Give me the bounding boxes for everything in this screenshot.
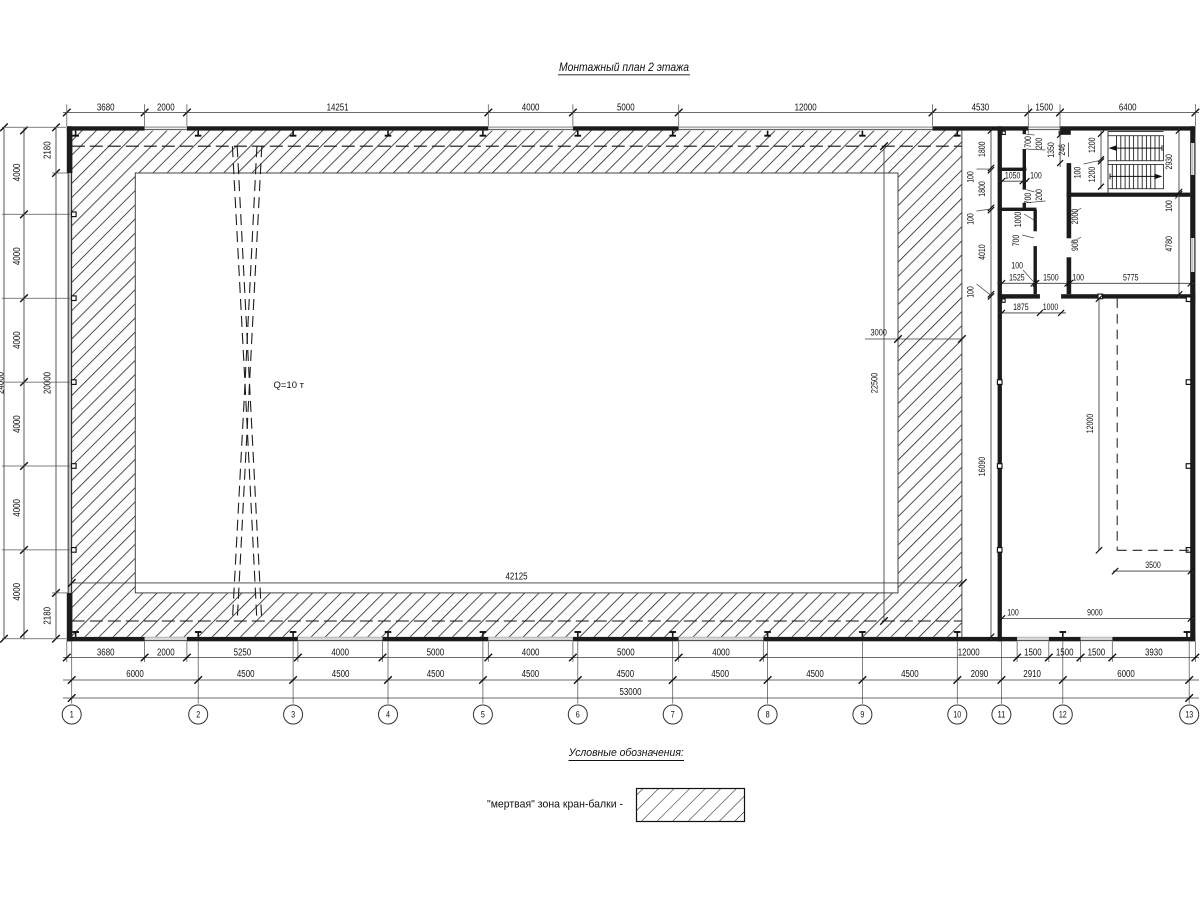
svg-text:13: 13 bbox=[1185, 710, 1193, 720]
svg-text:5000: 5000 bbox=[427, 648, 445, 659]
svg-text:6400: 6400 bbox=[1119, 103, 1137, 114]
svg-text:2000: 2000 bbox=[157, 648, 175, 659]
svg-text:3680: 3680 bbox=[97, 648, 115, 659]
svg-text:4000: 4000 bbox=[12, 415, 23, 433]
svg-text:4500: 4500 bbox=[901, 669, 919, 680]
svg-text:4500: 4500 bbox=[237, 669, 255, 680]
svg-text:1: 1 bbox=[70, 710, 74, 720]
svg-text:1800: 1800 bbox=[977, 141, 987, 157]
svg-text:4780: 4780 bbox=[1164, 236, 1174, 252]
svg-text:9: 9 bbox=[860, 710, 864, 720]
svg-text:1000: 1000 bbox=[1013, 212, 1023, 228]
svg-text:8: 8 bbox=[766, 710, 770, 720]
svg-text:16090: 16090 bbox=[977, 457, 987, 476]
svg-text:3500: 3500 bbox=[1145, 560, 1161, 570]
svg-text:12000: 12000 bbox=[958, 648, 980, 659]
svg-text:42125: 42125 bbox=[506, 571, 528, 582]
svg-text:4000: 4000 bbox=[12, 583, 23, 601]
svg-text:100: 100 bbox=[966, 286, 976, 298]
svg-text:6000: 6000 bbox=[126, 669, 144, 680]
svg-text:3930: 3930 bbox=[1145, 648, 1163, 659]
svg-text:1500: 1500 bbox=[1088, 648, 1106, 659]
svg-text:100: 100 bbox=[1007, 608, 1019, 618]
svg-text:1500: 1500 bbox=[1056, 648, 1074, 659]
svg-text:100: 100 bbox=[1164, 200, 1174, 212]
svg-text:10: 10 bbox=[953, 710, 961, 720]
svg-text:2: 2 bbox=[196, 710, 200, 720]
svg-text:4: 4 bbox=[386, 710, 390, 720]
svg-text:4000: 4000 bbox=[12, 163, 23, 181]
svg-text:4000: 4000 bbox=[12, 247, 23, 265]
svg-text:4000: 4000 bbox=[12, 499, 23, 517]
svg-text:200: 200 bbox=[1034, 189, 1044, 201]
svg-text:5000: 5000 bbox=[617, 648, 635, 659]
svg-text:12: 12 bbox=[1059, 710, 1067, 720]
svg-text:4000: 4000 bbox=[331, 648, 349, 659]
svg-text:100: 100 bbox=[966, 213, 976, 225]
svg-text:3: 3 bbox=[291, 710, 295, 720]
svg-text:246: 246 bbox=[1057, 144, 1067, 156]
svg-text:2930: 2930 bbox=[1164, 154, 1174, 170]
svg-text:Монтажный план 2 этажа: Монтажный план 2 этажа bbox=[559, 60, 689, 74]
svg-text:2090: 2090 bbox=[971, 669, 989, 680]
svg-text:5: 5 bbox=[481, 710, 485, 720]
svg-text:4000: 4000 bbox=[522, 648, 540, 659]
svg-text:3000: 3000 bbox=[871, 327, 887, 337]
svg-text:24000: 24000 bbox=[0, 372, 6, 394]
svg-text:100: 100 bbox=[1073, 167, 1083, 179]
svg-text:1875: 1875 bbox=[1013, 302, 1029, 312]
svg-text:2180: 2180 bbox=[42, 607, 53, 625]
svg-text:3680: 3680 bbox=[97, 103, 115, 114]
svg-text:900: 900 bbox=[1070, 239, 1080, 251]
svg-text:2910: 2910 bbox=[1023, 669, 1041, 680]
svg-text:4530: 4530 bbox=[972, 103, 990, 114]
svg-text:1200: 1200 bbox=[1087, 167, 1097, 183]
svg-text:2000: 2000 bbox=[157, 103, 175, 114]
svg-text:1500: 1500 bbox=[1024, 648, 1042, 659]
svg-text:1350: 1350 bbox=[1046, 142, 1056, 158]
svg-text:"мертвая" зона кран-балки -: "мертвая" зона кран-балки - bbox=[487, 799, 623, 811]
svg-text:11: 11 bbox=[997, 710, 1005, 720]
svg-text:4500: 4500 bbox=[522, 669, 540, 680]
svg-text:100: 100 bbox=[1072, 272, 1084, 282]
svg-text:4500: 4500 bbox=[332, 669, 350, 680]
svg-text:2180: 2180 bbox=[42, 141, 53, 159]
svg-text:4500: 4500 bbox=[806, 669, 824, 680]
svg-text:4010: 4010 bbox=[977, 244, 987, 260]
svg-text:200: 200 bbox=[1034, 138, 1044, 150]
svg-text:Q=10 т: Q=10 т bbox=[274, 380, 305, 391]
svg-text:20000: 20000 bbox=[42, 372, 53, 394]
svg-text:4500: 4500 bbox=[711, 669, 729, 680]
svg-text:6000: 6000 bbox=[1117, 669, 1135, 680]
svg-text:2000: 2000 bbox=[1070, 209, 1080, 225]
svg-text:1500: 1500 bbox=[1035, 103, 1053, 114]
svg-text:6: 6 bbox=[576, 710, 580, 720]
svg-text:22500: 22500 bbox=[869, 373, 879, 394]
svg-text:1525: 1525 bbox=[1009, 272, 1025, 282]
svg-text:1500: 1500 bbox=[1043, 272, 1059, 282]
svg-text:12000: 12000 bbox=[795, 103, 817, 114]
svg-text:5775: 5775 bbox=[1123, 272, 1139, 282]
svg-text:1800: 1800 bbox=[977, 181, 987, 197]
svg-text:9000: 9000 bbox=[1087, 608, 1103, 618]
svg-text:1050: 1050 bbox=[1005, 170, 1021, 180]
svg-text:4000: 4000 bbox=[12, 331, 23, 349]
svg-text:1000: 1000 bbox=[1043, 302, 1059, 312]
svg-text:53000: 53000 bbox=[620, 687, 642, 698]
svg-text:1200: 1200 bbox=[1087, 137, 1097, 153]
svg-text:14251: 14251 bbox=[327, 103, 349, 114]
svg-text:7: 7 bbox=[671, 710, 675, 720]
svg-text:4500: 4500 bbox=[617, 669, 635, 680]
svg-text:100: 100 bbox=[1011, 261, 1023, 271]
svg-text:700: 700 bbox=[1011, 235, 1021, 247]
svg-text:12000: 12000 bbox=[1085, 414, 1095, 433]
svg-text:4500: 4500 bbox=[427, 669, 445, 680]
svg-text:100: 100 bbox=[966, 171, 976, 183]
svg-text:4000: 4000 bbox=[522, 103, 540, 114]
svg-text:700: 700 bbox=[1023, 136, 1033, 148]
svg-text:4000: 4000 bbox=[712, 648, 730, 659]
svg-text:5250: 5250 bbox=[234, 648, 252, 659]
svg-text:Условные обозначения:: Условные обозначения: bbox=[568, 747, 684, 759]
svg-text:100: 100 bbox=[1030, 171, 1042, 181]
svg-text:5000: 5000 bbox=[617, 103, 635, 114]
